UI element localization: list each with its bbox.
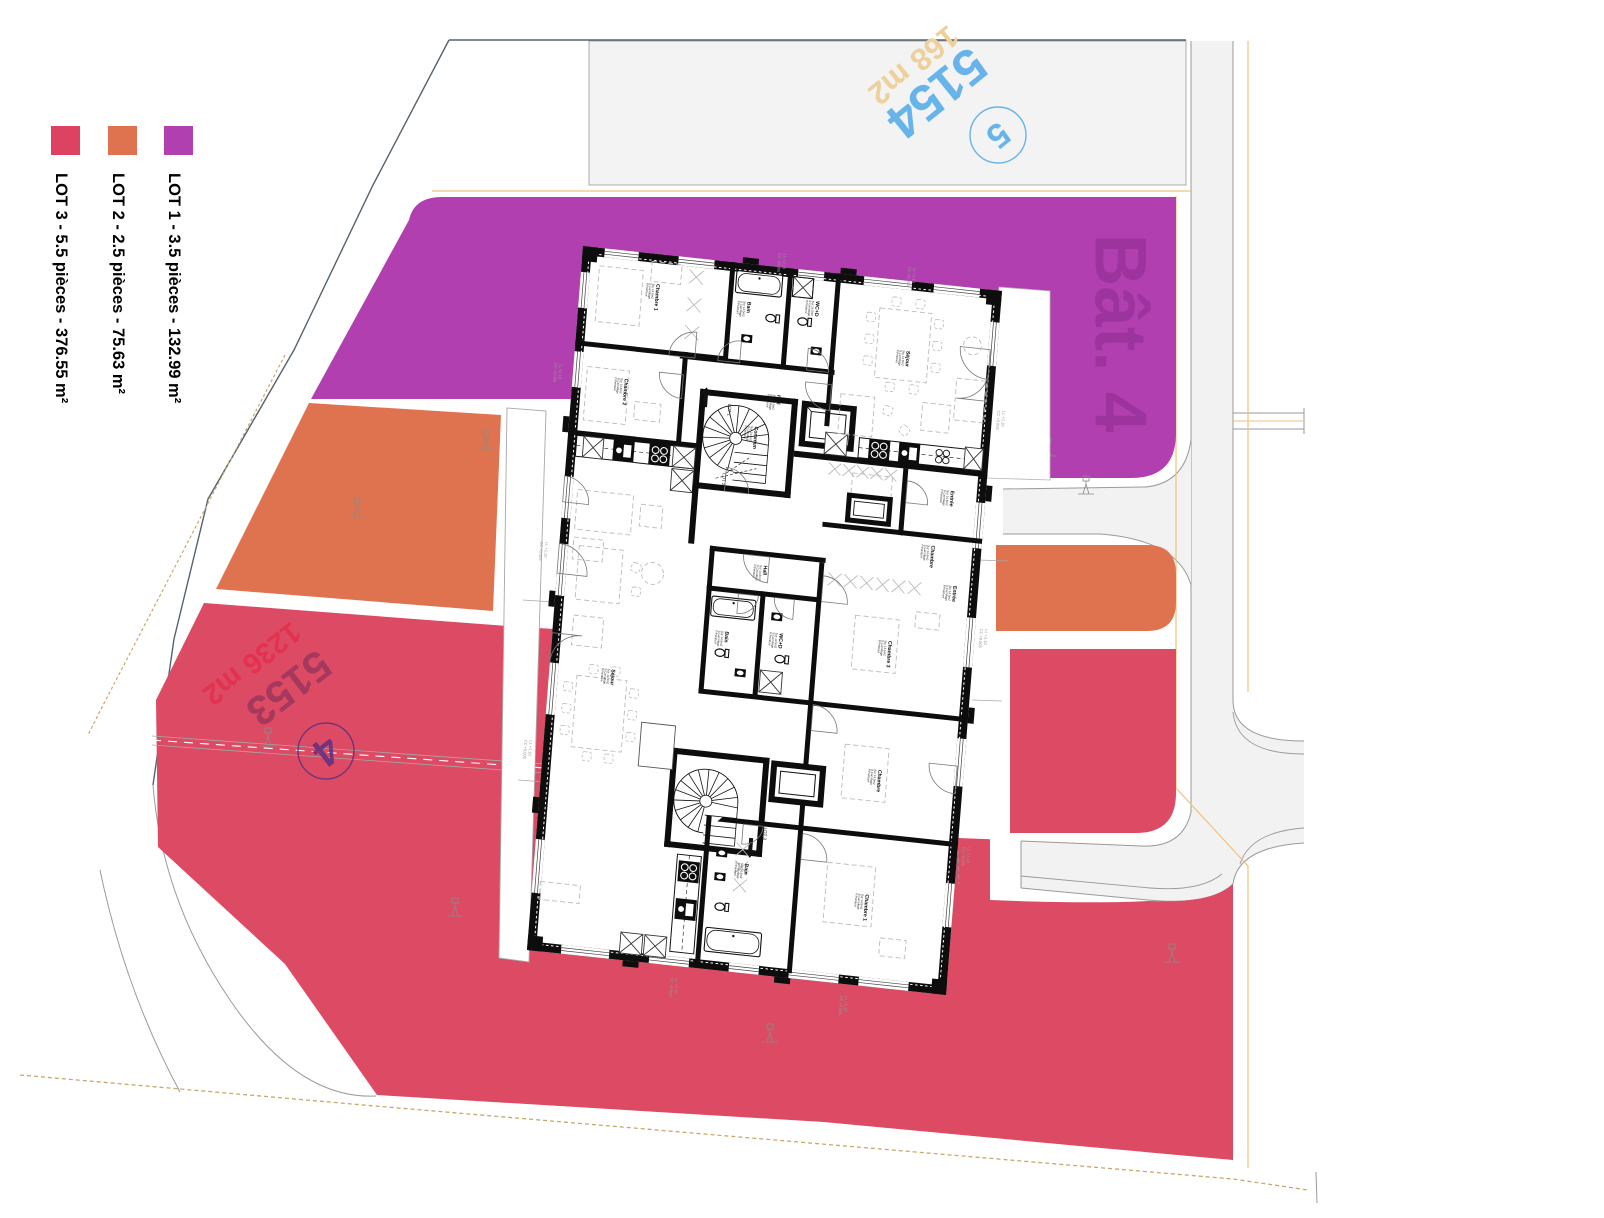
svg-text:LOT 1: LOT 1 [726, 404, 732, 417]
svg-text:LOT 2: LOT 2 [721, 473, 727, 486]
svg-text:Bât. 4: Bât. 4 [1080, 234, 1161, 433]
svg-text:LOT 2 - 2.5 pièces - 75.63: LOT 2 - 2.5 pièces - 75.63 m² [109, 173, 127, 395]
svg-text:LOT 3 - 5.5 pièces - 376.55: LOT 3 - 5.5 pièces - 376.55 m² [52, 173, 70, 404]
svg-text:LOT 3: LOT 3 [762, 827, 768, 840]
svg-text:LOT 1 - 3.5 pièces - 132.99: LOT 1 - 3.5 pièces - 132.99 m² [165, 173, 183, 404]
